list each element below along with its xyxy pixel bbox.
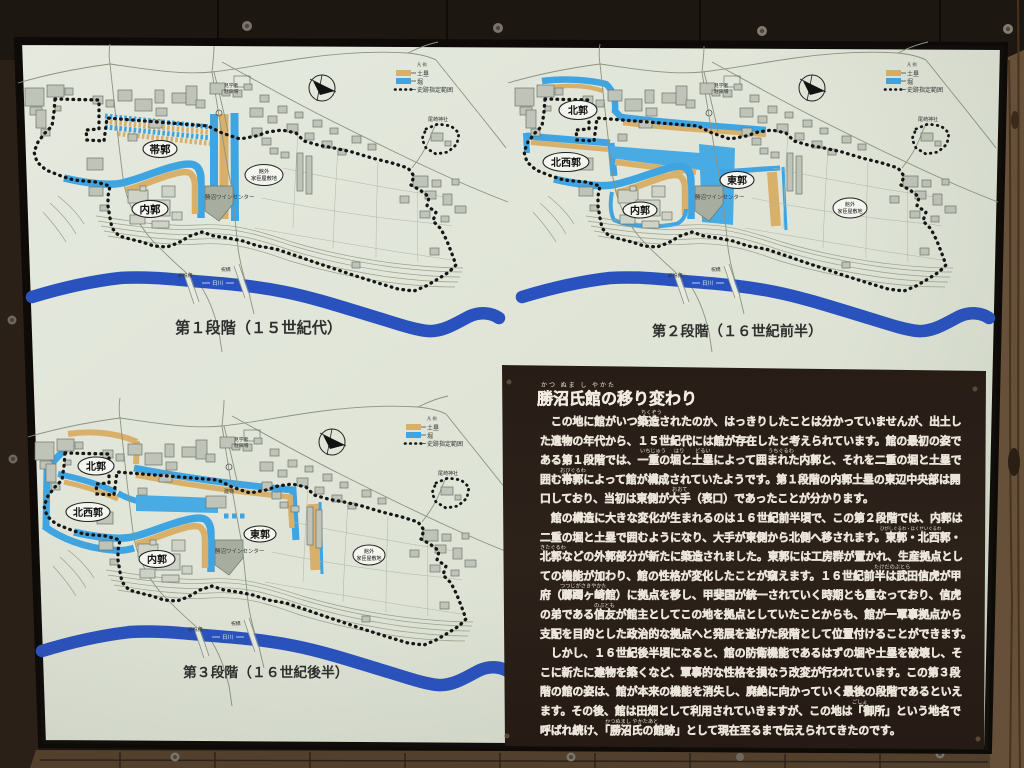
svg-text:たけだのぶとら: たけだのぶとら xyxy=(874,563,910,570)
svg-text:呼ばれ続け、「勝沼氏の館跡」として現在至るまで伝えられてきた: 呼ばれ続け、「勝沼氏の館跡」として現在至るまで伝えられてきたのです。 xyxy=(540,723,901,737)
svg-text:うちぐるわ: うちぐるわ xyxy=(768,448,794,455)
svg-text:はり: はり xyxy=(674,448,684,455)
svg-text:口しており、当初は東側が大手（表口）であったことが分かります: 口しており、当初は東側が大手（表口）であったことが分かります。 xyxy=(540,491,874,505)
svg-text:ごしょ: ごしょ xyxy=(852,698,868,706)
svg-text:ある第１段階では、一重の堀と土塁によって囲まれた内郭と、それ: ある第１段階では、一重の堀と土塁によって囲まれた内郭と、それを二重の堀と土塁で xyxy=(540,453,962,467)
svg-text:のぶとも: のぶとも xyxy=(594,602,615,609)
svg-text:おおて: おおて xyxy=(672,486,688,493)
svg-text:府（躑躅ヶ崎館）に拠点を移し、甲斐国が統一されていく時期とも: 府（躑躅ヶ崎館）に拠点を移し、甲斐国が統一されていく時期とも重なっており、信虎 xyxy=(540,588,961,602)
svg-text:北郭などの外郭部分が新たに築造されました。東郭には工房群が置: 北郭などの外郭部分が新たに築造されました。東郭には工房群が置かれ、生産拠点とし xyxy=(540,549,963,563)
svg-text:ます。その後、館は田畑として利用されていきますが、この地は「: ます。その後、館は田畑として利用されていきますが、この地は「御所」という地名で xyxy=(540,704,961,718)
svg-text:この地に館がいつ築造されたのか、はっきりしたことは分かってい: この地に館がいつ築造されたのか、はっきりしたことは分かっていませんが、出土し xyxy=(540,414,962,428)
svg-text:かつ ぬま し やかた: かつ ぬま し やかた xyxy=(541,381,616,389)
svg-text:た遺物の年代から、１５世紀代には館が存在したと考えられていま: た遺物の年代から、１５世紀代には館が存在したと考えられています。館の最初の姿で xyxy=(540,433,962,447)
svg-text:ての機能が加わり、館の性格が変化したことが窺えます。１６世紀: ての機能が加わり、館の性格が変化したことが窺えます。１６世紀前半は武田信虎が甲 xyxy=(540,568,961,582)
svg-text:の弟である信友が館主としてこの地を拠点としていたことからも、: の弟である信友が館主としてこの地を拠点としていたことからも、館が一軍事拠点から xyxy=(540,607,962,621)
svg-text:ひがしぐるわ・ほくせいぐるわ: ひがしぐるわ・ほくせいぐるわ xyxy=(880,525,942,532)
svg-text:おびぐるわ: おびぐるわ xyxy=(560,466,586,474)
svg-text:いちじゅう: いちじゅう xyxy=(640,448,666,455)
svg-text:つつじがさきやかた: つつじがさきやかた xyxy=(560,582,607,590)
svg-text:しかし、１６世紀後半頃になると、館の防衛機能であるはずの堀や: しかし、１６世紀後半頃になると、館の防衛機能であるはずの堀や土塁を破壊し、そ xyxy=(540,646,962,660)
svg-text:かつぬまし やかたあと: かつぬまし やかたあと xyxy=(605,717,658,725)
svg-text:きたぐるわ: きたぐるわ xyxy=(540,544,566,551)
svg-text:館の構造に大きな変化が生まれるのは１６世紀前半頃で、この第２: 館の構造に大きな変化が生まれるのは１６世紀前半頃で、この第２段階では、内郭は xyxy=(540,511,963,525)
svg-text:こに新たに建物を築くなど、軍事的な性格を損なう改変が行われて: こに新たに建物を築くなど、軍事的な性格を損なう改変が行われています。この第３段 xyxy=(540,665,961,679)
svg-text:勝沼氏館の移り変わり: 勝沼氏館の移り変わり xyxy=(537,389,697,408)
svg-text:どるい: どるい xyxy=(695,447,711,455)
svg-text:二重の堀と土塁で囲むようになり、大手が東側から北側へ移されま: 二重の堀と土塁で囲むようになり、大手が東側から北側へ移されます。東郭・北西郭・ xyxy=(540,530,961,544)
svg-text:支配を目的とした政治的な拠点へと発展を遂げた段階として位置付: 支配を目的とした政治的な拠点へと発展を遂げた段階として位置付けることができます。 xyxy=(539,626,972,640)
svg-text:階の館の姿は、館が本来の機能を消失し、廃絶に向かっていく最後: 階の館の姿は、館が本来の機能を消失し、廃絶に向かっていく最後の段階であるといえ xyxy=(540,684,962,698)
svg-text:ちくぞう: ちくぞう xyxy=(641,409,662,416)
svg-text:囲む帯郭によって館が構成されていたようです。第１段階の内郭土: 囲む帯郭によって館が構成されていたようです。第１段階の内郭土塁の東辺中央部は開 xyxy=(540,472,961,486)
